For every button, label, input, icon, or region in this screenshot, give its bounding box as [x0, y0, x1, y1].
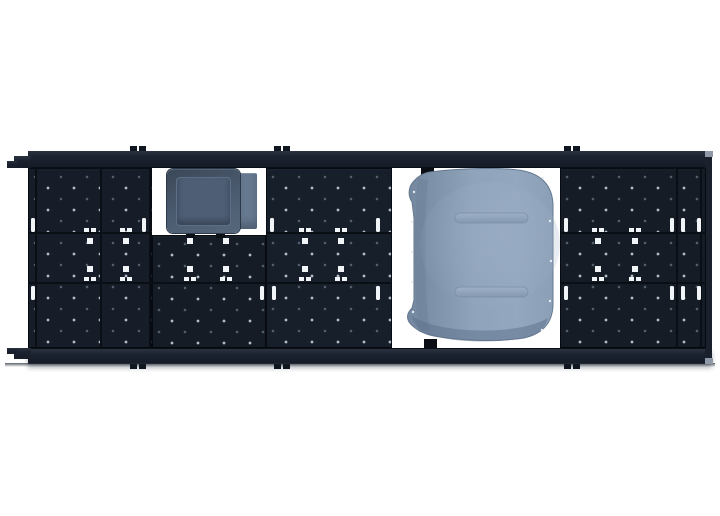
tie-down-slot [564, 286, 568, 300]
tie-down-slot [31, 286, 35, 300]
clamp-plate [187, 238, 193, 244]
clamp-mark [335, 228, 347, 232]
clamp-plate [223, 266, 229, 272]
rail-bracket [564, 146, 580, 151]
tie-down-slot [31, 218, 35, 232]
tie-down-slot [376, 218, 380, 232]
clamp-mark [120, 277, 132, 281]
clamp-plate [595, 266, 601, 272]
clamp-mark [220, 277, 232, 281]
rail-bracket [130, 146, 146, 151]
clamp-plate [87, 266, 93, 272]
clamp-mark [299, 228, 311, 232]
roof-fan-lid [176, 177, 231, 226]
rail-bracket [130, 364, 146, 369]
clamp-plate [187, 266, 193, 272]
clamp-mark [592, 228, 604, 232]
clamp-mark [84, 228, 96, 232]
rail-bracket [274, 364, 290, 369]
clamp-mark [629, 277, 641, 281]
clamp-mark [84, 277, 96, 281]
rail-bracket [274, 146, 290, 151]
clamp-plate [302, 266, 308, 272]
clamp-plate [595, 238, 601, 244]
fan-foot [216, 233, 225, 238]
tie-down-slot [697, 218, 701, 232]
tie-down-slot [376, 286, 380, 300]
tie-down-slot [670, 218, 674, 232]
clamp-plate [338, 238, 344, 244]
clamp-mark [299, 277, 311, 281]
pop-top-cover [398, 166, 560, 344]
tie-down-slot [697, 286, 701, 300]
pop-top-rib [455, 287, 528, 297]
tie-down-slot [681, 218, 685, 232]
pop-top-rib [455, 213, 528, 223]
tie-down-slot [681, 286, 685, 300]
clamp-mark [335, 277, 347, 281]
clamp-mark [592, 277, 604, 281]
product-render-roof-rack: Modular roof rack platform — top view wi… [0, 0, 720, 516]
clamp-plate [338, 266, 344, 272]
clamp-plate [302, 238, 308, 244]
clamp-plate [632, 266, 638, 272]
tie-down-slot [272, 286, 276, 300]
clamp-mark [120, 228, 132, 232]
clamp-plate [123, 238, 129, 244]
deck-fixtures [0, 0, 720, 516]
fan-foot [186, 233, 195, 238]
tie-down-slot [670, 286, 674, 300]
clamp-mark [184, 277, 196, 281]
clamp-plate [87, 238, 93, 244]
clamp-plate [123, 266, 129, 272]
tie-down-slot [260, 286, 264, 300]
rail-bracket [564, 364, 580, 369]
tie-down-slot [270, 218, 274, 232]
clamp-plate [223, 238, 229, 244]
clamp-plate [632, 238, 638, 244]
tie-down-slot [564, 218, 568, 232]
clamp-mark [629, 228, 641, 232]
tie-down-slot [142, 218, 146, 232]
